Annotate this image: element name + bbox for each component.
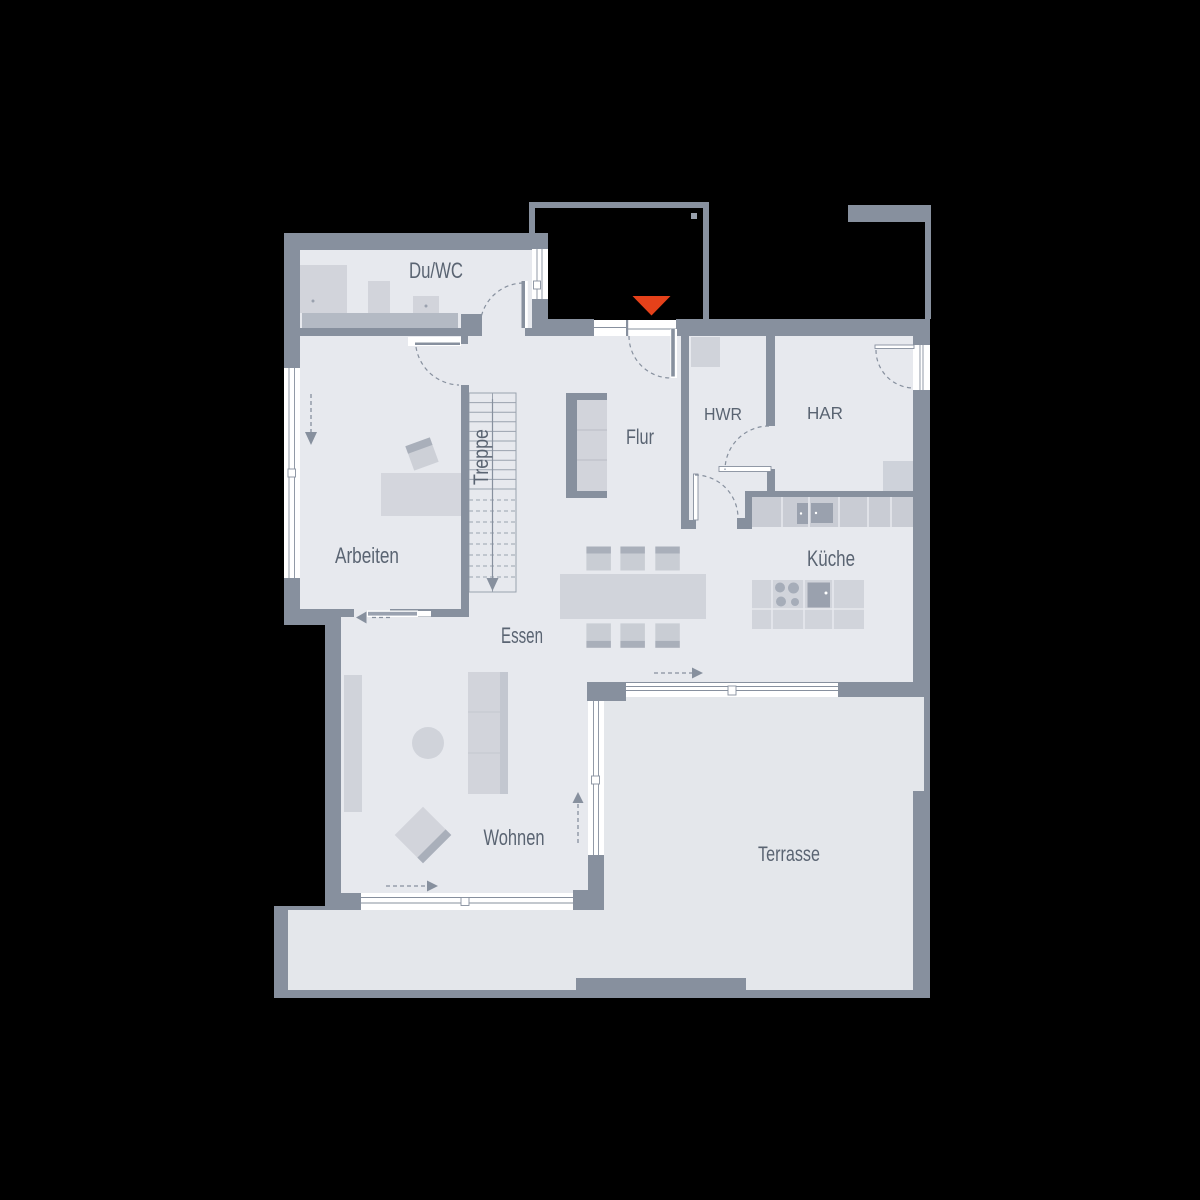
svg-text:Arbeiten: Arbeiten	[335, 543, 399, 568]
svg-text:HAR: HAR	[807, 403, 843, 423]
svg-text:Flur: Flur	[626, 426, 654, 449]
svg-text:Treppe: Treppe	[470, 429, 493, 485]
svg-text:Terrasse: Terrasse	[758, 843, 820, 866]
svg-text:Wohnen: Wohnen	[484, 825, 545, 850]
svg-text:Du/WC: Du/WC	[409, 258, 463, 283]
svg-text:HWR: HWR	[704, 404, 742, 424]
svg-text:Essen: Essen	[501, 623, 543, 648]
svg-text:Küche: Küche	[807, 546, 855, 571]
